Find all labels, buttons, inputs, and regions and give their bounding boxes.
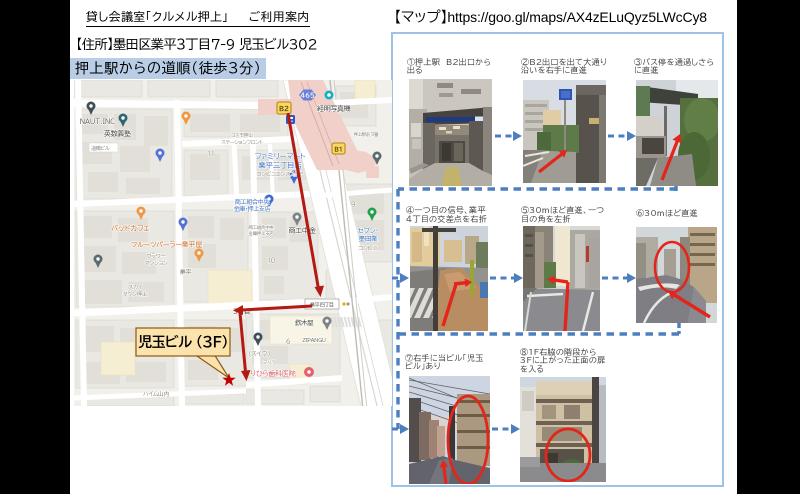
svg-text:セブン-: セブン- [357,227,378,234]
svg-text:10: 10 [267,257,275,264]
svg-text:商工組合中央: 商工組合中央 [248,224,274,230]
svg-text:9: 9 [351,201,356,209]
svg-text:ZIPANGU: ZIPANGU [302,338,326,343]
svg-text:商工組合中央: 商工組合中央 [235,198,270,206]
svg-text:マンション: マンション [145,260,168,266]
svg-text:墨田業: 墨田業 [359,235,378,242]
svg-text:児玉ビル (3F): 児玉ビル (3F) [138,334,228,349]
svg-text:6: 6 [286,338,291,345]
svg-text:英数義塾: 英数義塾 [104,129,131,138]
svg-text:押上駅前交番: 押上駅前交番 [352,131,379,137]
svg-text:経明写真機: 経明写真機 [316,104,351,113]
svg-text:業平: 業平 [179,268,192,275]
svg-text:465: 465 [300,91,315,98]
svg-text:(スイウ): (スイウ) [248,350,270,357]
svg-text:ステーションフロント: ステーションフロント [221,139,263,145]
svg-text:B2: B2 [279,105,289,112]
svg-text:スカイ: スカイ [128,284,143,290]
svg-text:B1: B1 [334,147,342,153]
svg-text:金庫押上支店: 金庫押上支店 [247,230,274,236]
svg-text:業平四丁目: 業平四丁目 [309,302,334,308]
svg-text:欽木屋: 欽木屋 [295,319,314,327]
svg-text:フラワー: フラワー [146,253,165,259]
svg-text:ファミリーマート: ファミリーマート [255,152,306,160]
svg-text:NAUT .INC: NAUT .INC [80,118,115,125]
svg-text:コンビニ: コンビニ [357,245,377,251]
svg-text:11: 11 [207,150,215,157]
svg-text:タウン押上: タウン押上 [123,290,148,297]
svg-text:コスモ押上: コスモ押上 [231,131,254,138]
svg-text:バッドカフェ: バッドカフェ [111,224,149,232]
svg-text:道橋ビル: 道橋ビル [91,145,110,151]
svg-text:フルーツパーラー業平屋: フルーツパーラー業平屋 [131,240,203,249]
svg-text:商工中金: 商工中金 [289,226,316,234]
svg-text:金庫・押上支店: 金庫・押上支店 [233,205,271,212]
svg-text:りひら歯科医院: りひら歯科医院 [250,369,297,377]
svg-text:ハイム山内: ハイム山内 [143,390,169,398]
svg-text:マハラ: マハラ [263,359,277,365]
